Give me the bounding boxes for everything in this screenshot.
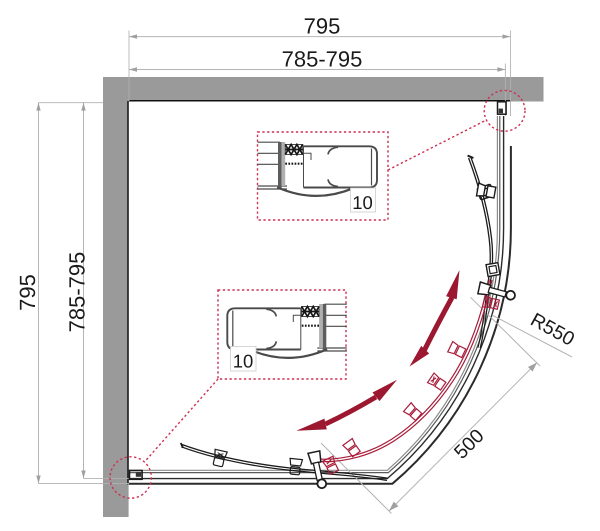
svg-text:785-795: 785-795	[282, 46, 363, 71]
svg-text:795: 795	[304, 14, 341, 39]
svg-text:795: 795	[15, 274, 40, 311]
svg-text:10: 10	[352, 192, 373, 213]
svg-text:785-795: 785-795	[65, 252, 90, 333]
svg-text:10: 10	[233, 351, 254, 372]
